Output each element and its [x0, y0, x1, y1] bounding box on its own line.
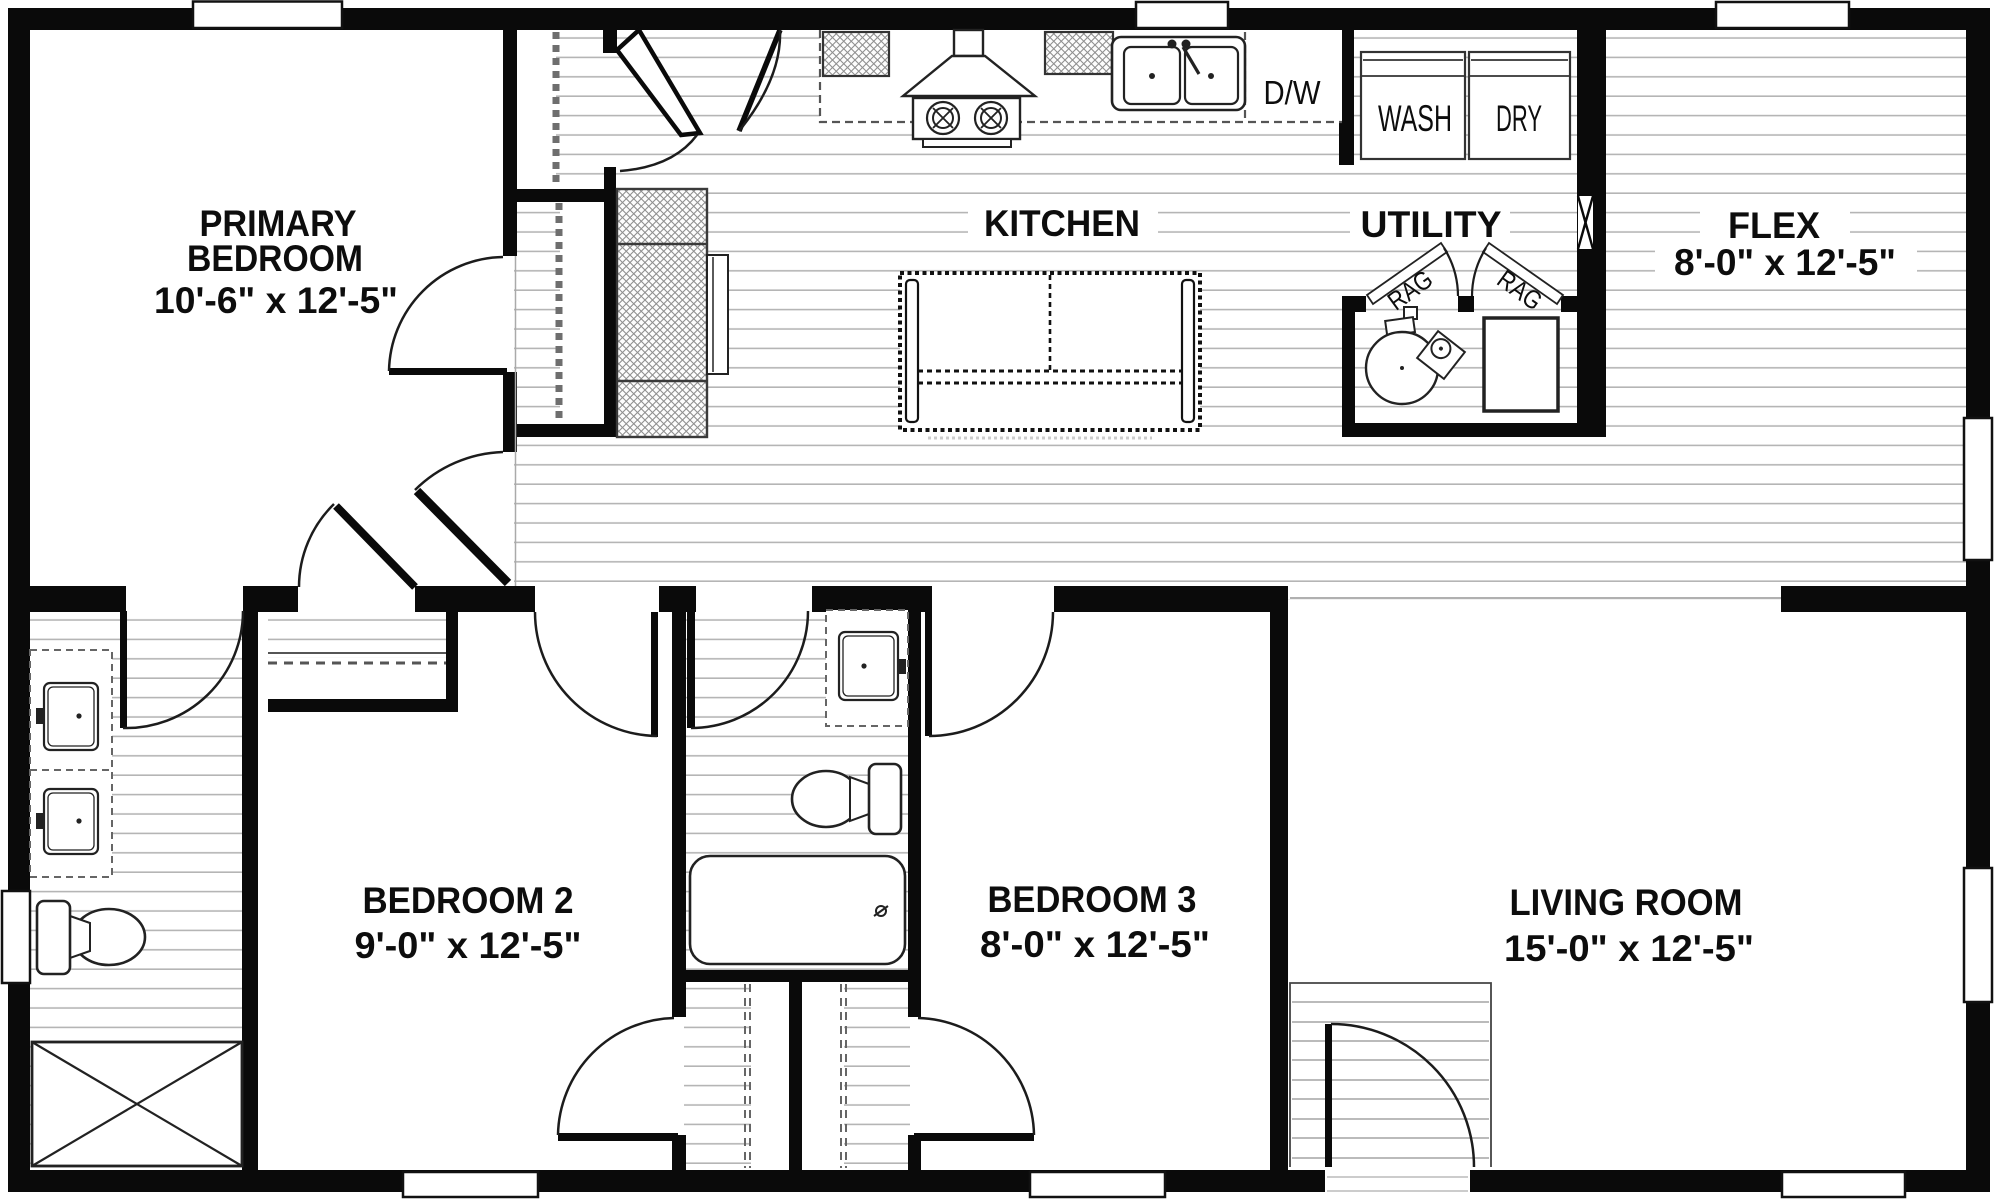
svg-text:10'-6" x 12'-5": 10'-6" x 12'-5" — [154, 280, 398, 321]
svg-text:BEDROOM 3: BEDROOM 3 — [988, 879, 1197, 920]
svg-text:BEDROOM: BEDROOM — [187, 238, 363, 279]
svg-text:FLEX: FLEX — [1728, 205, 1820, 246]
svg-text:D/W: D/W — [1264, 74, 1322, 111]
svg-text:KITCHEN: KITCHEN — [984, 203, 1140, 244]
svg-text:LIVING ROOM: LIVING ROOM — [1510, 882, 1743, 923]
svg-text:UTILITY: UTILITY — [1361, 204, 1502, 245]
svg-text:9'-0" x 12'-5": 9'-0" x 12'-5" — [355, 925, 582, 966]
svg-text:8'-0" x 12'-5": 8'-0" x 12'-5" — [1674, 242, 1896, 283]
svg-text:DRY: DRY — [1496, 98, 1542, 139]
svg-text:15'-0" x 12'-5": 15'-0" x 12'-5" — [1504, 928, 1754, 969]
svg-text:8'-0" x 12'-5": 8'-0" x 12'-5" — [980, 924, 1210, 965]
svg-text:WASH: WASH — [1378, 98, 1452, 139]
svg-text:BEDROOM 2: BEDROOM 2 — [363, 880, 574, 921]
